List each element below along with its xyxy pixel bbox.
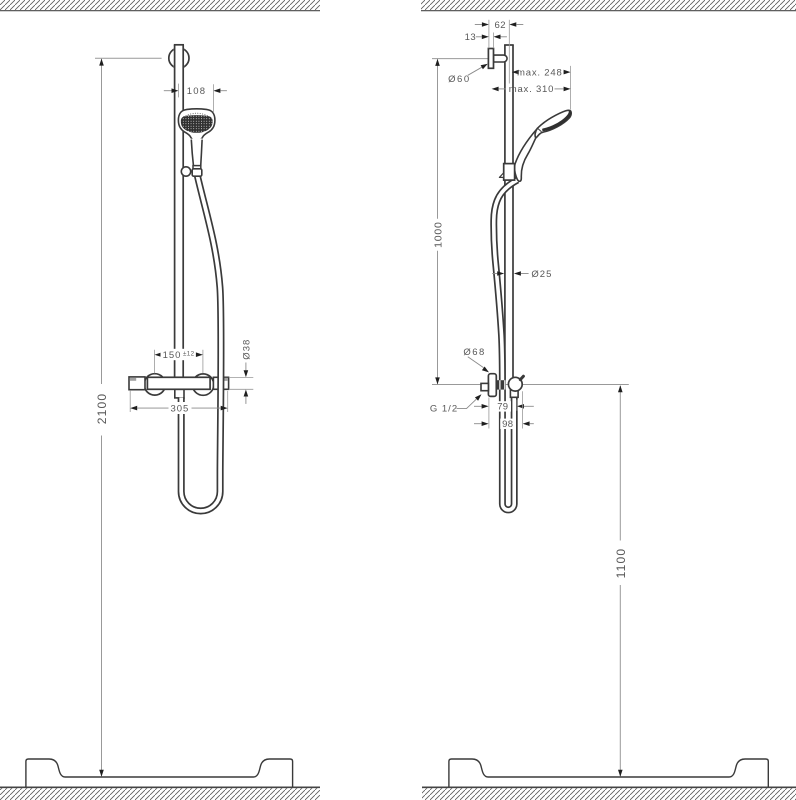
svg-text:62: 62: [495, 20, 507, 31]
svg-text:98: 98: [502, 419, 513, 430]
svg-text:max. 248: max. 248: [517, 67, 562, 78]
svg-text:±12: ±12: [183, 351, 195, 358]
svg-text:Ø60: Ø60: [448, 74, 470, 85]
svg-text:305: 305: [170, 403, 189, 414]
svg-text:Ø68: Ø68: [463, 347, 485, 358]
svg-text:13: 13: [465, 32, 477, 43]
svg-text:1000: 1000: [433, 221, 445, 248]
svg-text:Ø38: Ø38: [241, 339, 252, 360]
svg-text:108: 108: [187, 86, 206, 97]
svg-text:max. 310: max. 310: [509, 84, 554, 95]
svg-text:2100: 2100: [95, 393, 109, 425]
svg-text:G 1/2: G 1/2: [430, 404, 458, 415]
svg-text:Ø25: Ø25: [531, 269, 552, 280]
svg-text:150: 150: [163, 350, 182, 361]
svg-text:1100: 1100: [614, 548, 628, 579]
svg-text:79: 79: [497, 402, 508, 413]
